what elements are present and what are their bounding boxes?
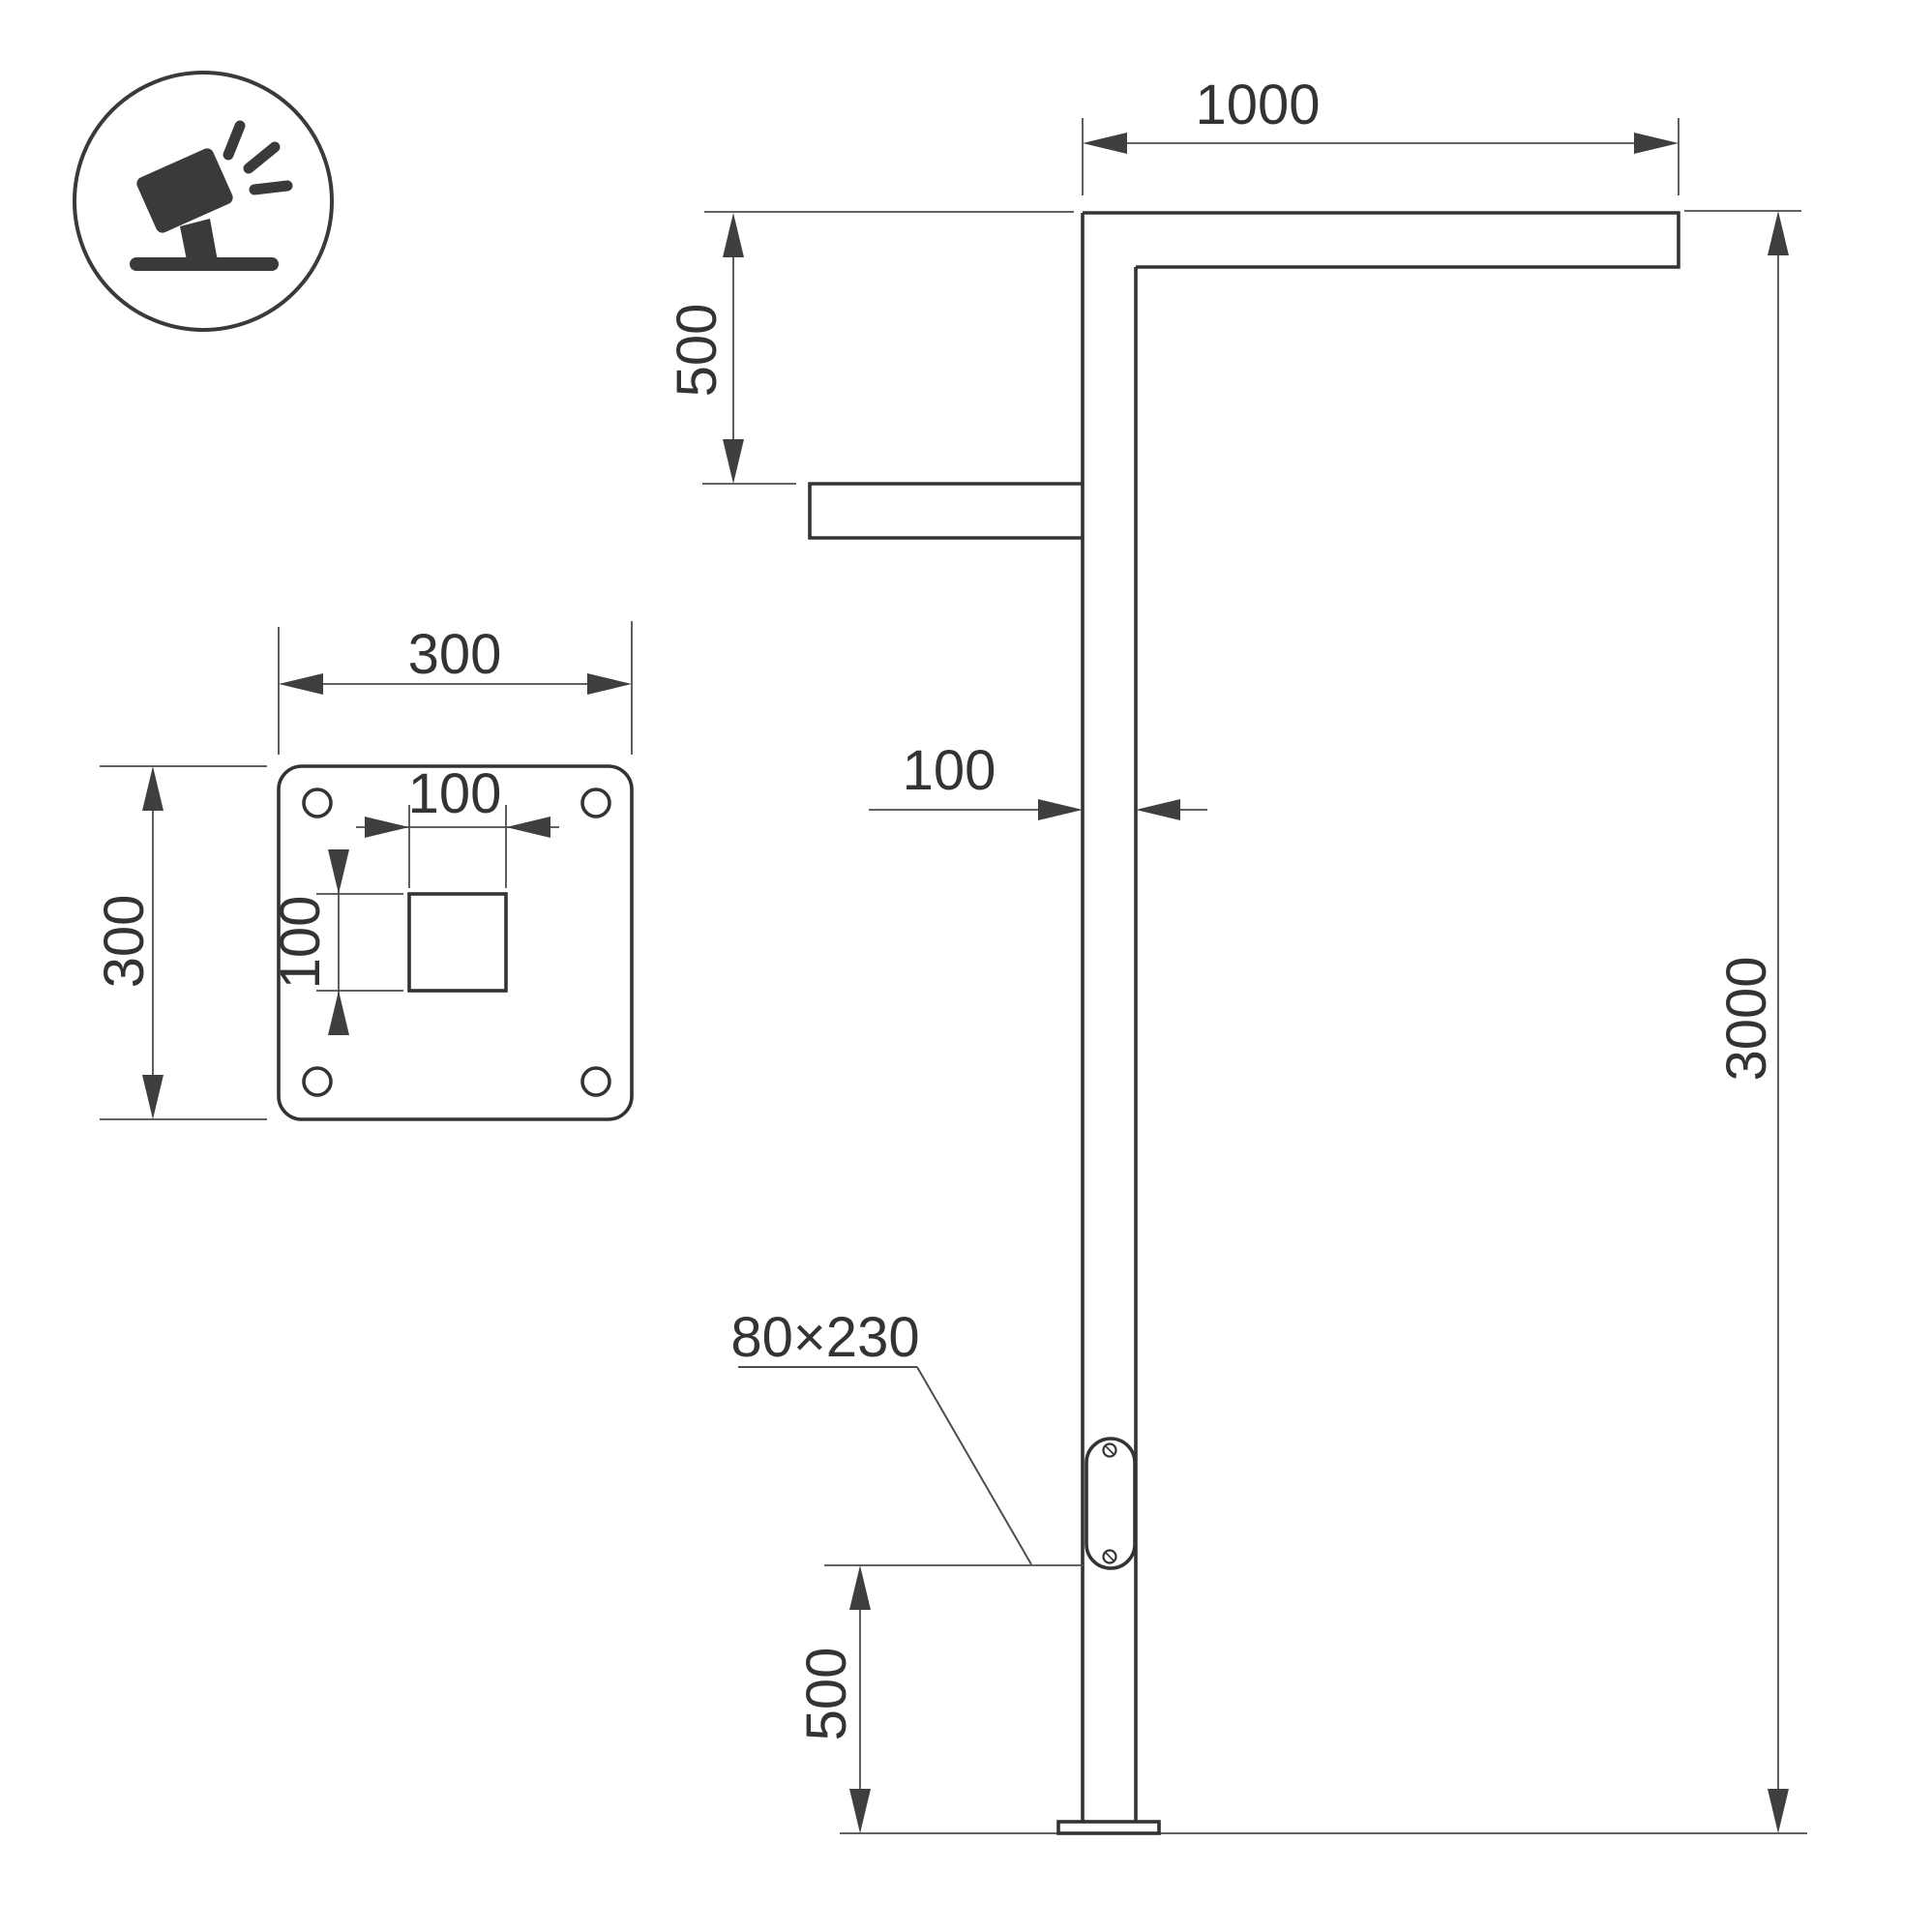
dim-arm-drop: 500: [666, 212, 1074, 484]
base-plate-side-view: [1058, 1822, 1159, 1833]
floodlight-icon: [74, 73, 332, 330]
dim-arrowhead: [1768, 211, 1789, 255]
dim-arrowhead: [1083, 133, 1127, 154]
cutout-height-label: 100: [269, 896, 332, 990]
dim-arrowhead: [142, 1075, 163, 1119]
service-panel-callout: 80×230: [730, 1306, 1031, 1564]
dim-arrowhead: [1038, 799, 1083, 820]
plate-height-label: 300: [93, 895, 156, 989]
pole-width-label: 100: [903, 739, 996, 802]
dim-arrowhead: [1136, 799, 1180, 820]
dim-service-panel-height: 500: [795, 1565, 1085, 1833]
service-panel: [1086, 1439, 1135, 1568]
cutout-width-label: 100: [408, 762, 502, 825]
arm-drop-label: 500: [666, 304, 728, 398]
light-ray-icon: [254, 186, 287, 190]
service-panel-size-label: 80×230: [730, 1306, 919, 1369]
dim-arrowhead: [849, 1789, 871, 1833]
technical-drawing-page: 300 300 100 100: [0, 0, 1932, 1932]
dim-plate-width: 300: [279, 621, 632, 755]
service-panel-height-label: 500: [795, 1648, 858, 1741]
dim-arrowhead: [723, 439, 744, 484]
dim-arrowhead: [1768, 1789, 1789, 1833]
dim-arrowhead: [279, 673, 323, 695]
base-plate-top-view: 300 300 100 100: [93, 621, 632, 1119]
dim-arrowhead: [849, 1565, 871, 1610]
total-height-label: 3000: [1715, 956, 1778, 1081]
dim-arrowhead: [142, 766, 163, 811]
light-ray-icon: [228, 126, 240, 155]
plate-width-label: 300: [408, 623, 502, 686]
dim-arrowhead: [587, 673, 632, 695]
floodlight-base-icon: [130, 257, 279, 271]
pole-elevation-view: 1000 500 100 80×230: [666, 74, 1807, 1833]
dim-pole-width: 100: [869, 739, 1207, 820]
dim-arrowhead: [723, 213, 744, 257]
lower-arm-outline: [810, 484, 1083, 538]
service-panel-oval: [1086, 1439, 1135, 1568]
dim-arrowhead: [1634, 133, 1679, 154]
top-arm-outline: [1083, 213, 1679, 267]
leader-line: [917, 1367, 1031, 1564]
pole-dimension-drawing: 300 300 100 100: [0, 0, 1932, 1932]
arm-length-label: 1000: [1195, 74, 1320, 136]
dim-plate-height: 300: [93, 766, 267, 1119]
floodlight-head-icon: [134, 146, 235, 235]
light-ray-icon: [249, 147, 275, 168]
dim-total-height: 3000: [1684, 211, 1801, 1833]
dim-arm-length: 1000: [1083, 74, 1679, 195]
